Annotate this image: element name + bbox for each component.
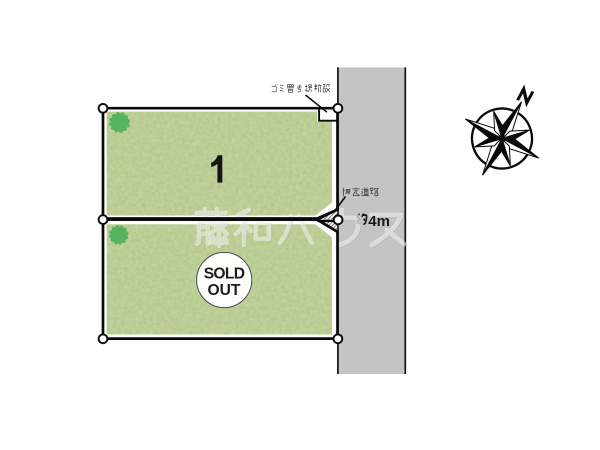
- svg-text:SOLD: SOLD: [204, 265, 245, 282]
- svg-text:OUT: OUT: [208, 282, 241, 299]
- svg-text:4m: 4m: [368, 213, 390, 230]
